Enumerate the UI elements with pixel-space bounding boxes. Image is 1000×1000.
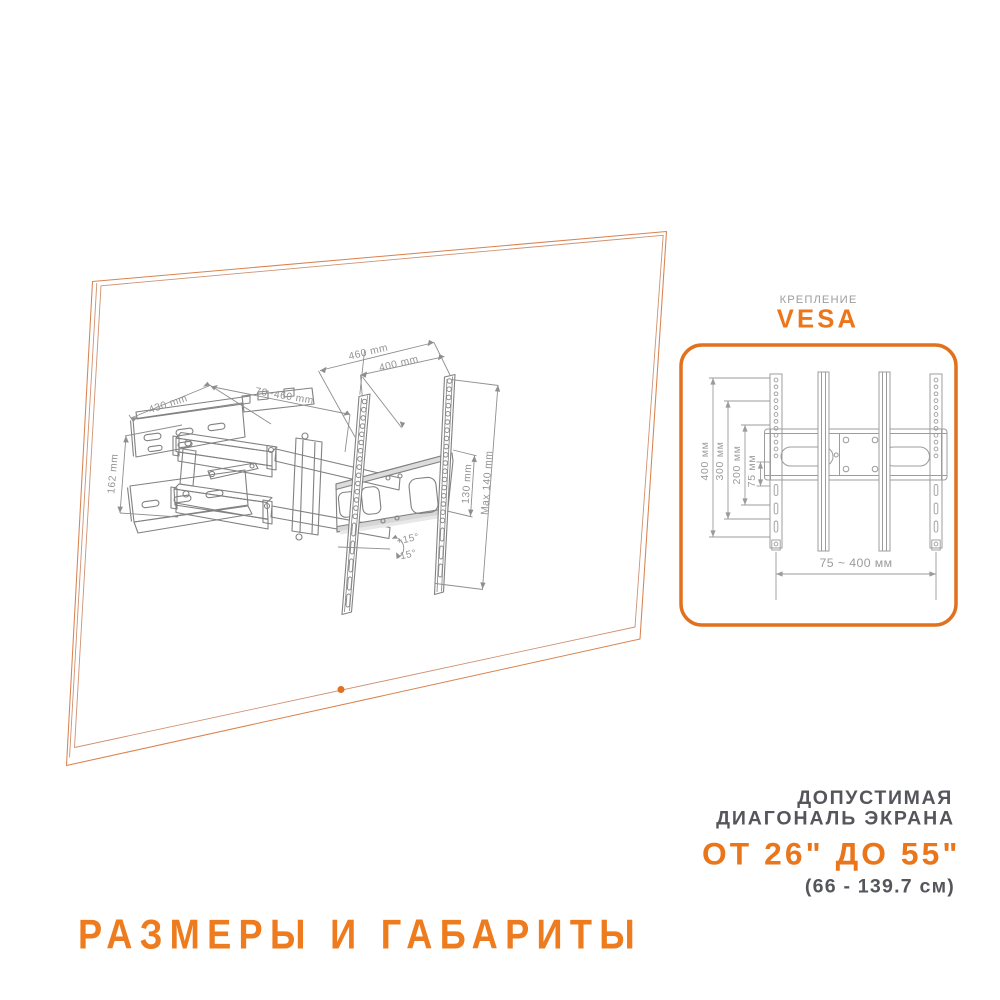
svg-text:РАЗМЕРЫ И ГАБАРИТЫ: РАЗМЕРЫ И ГАБАРИТЫ [78, 911, 642, 958]
svg-text:КРЕПЛЕНИЕ: КРЕПЛЕНИЕ [780, 294, 858, 306]
svg-text:400 мм: 400 мм [699, 441, 711, 480]
svg-text:ОТ 26" ДО 55": ОТ 26" ДО 55" [702, 835, 960, 871]
svg-text:300 мм: 300 мм [714, 441, 726, 480]
svg-text:VESA: VESA [777, 305, 860, 333]
svg-text:75 мм: 75 мм [746, 455, 758, 488]
svg-text:200 мм: 200 мм [731, 445, 743, 484]
svg-text:(66 - 139.7 см): (66 - 139.7 см) [805, 876, 955, 898]
svg-text:ДИАГОНАЛЬ ЭКРАНА: ДИАГОНАЛЬ ЭКРАНА [716, 807, 955, 829]
svg-text:75 ~ 400 мм: 75 ~ 400 мм [820, 556, 893, 570]
svg-text:ДОПУСТИМАЯ: ДОПУСТИМАЯ [797, 787, 953, 809]
